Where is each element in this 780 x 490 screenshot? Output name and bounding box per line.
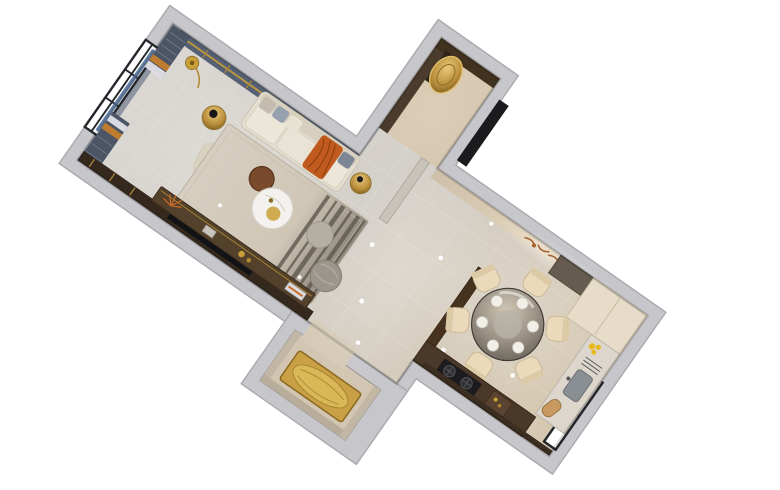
- dining-chair: [545, 316, 570, 343]
- apartment: [16, 0, 729, 490]
- floorplan-render: [0, 0, 780, 490]
- floorplan-svg: [0, 0, 780, 490]
- dining-chair: [445, 307, 470, 334]
